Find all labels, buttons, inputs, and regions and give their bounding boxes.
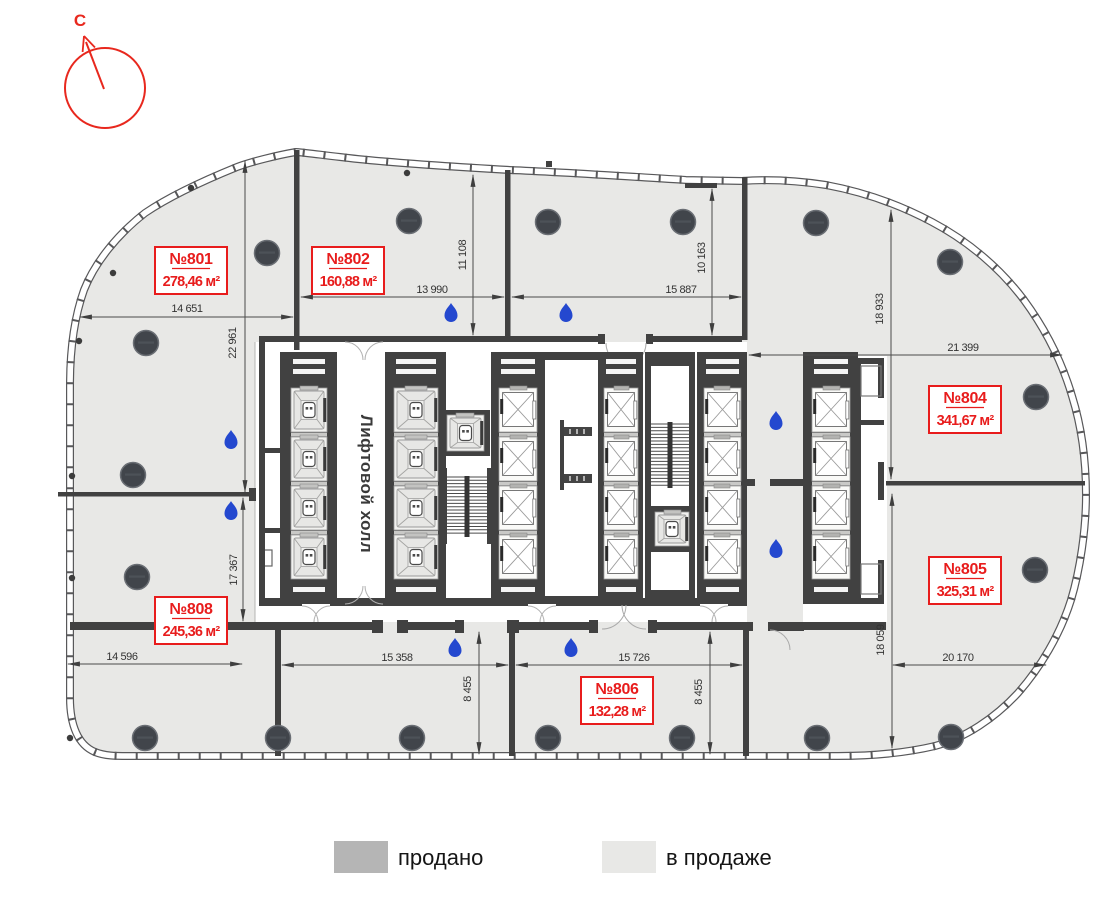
svg-text:21 399: 21 399 bbox=[947, 342, 979, 354]
svg-text:245,36 м²: 245,36 м² bbox=[163, 624, 221, 640]
svg-text:№802: №802 bbox=[326, 251, 370, 268]
svg-text:11 108: 11 108 bbox=[457, 240, 469, 271]
svg-text:341,67 м²: 341,67 м² bbox=[937, 413, 995, 429]
svg-text:Лифтовой холл: Лифтовой холл bbox=[357, 415, 376, 553]
svg-text:№808: №808 bbox=[169, 601, 213, 618]
svg-text:8 455: 8 455 bbox=[462, 676, 474, 702]
svg-text:№805: №805 bbox=[943, 561, 987, 578]
svg-text:№801: №801 bbox=[169, 251, 213, 268]
svg-text:132,28 м²: 132,28 м² bbox=[589, 704, 647, 720]
svg-text:№804: №804 bbox=[943, 390, 987, 407]
svg-text:15 726: 15 726 bbox=[618, 652, 650, 664]
svg-text:С: С bbox=[74, 11, 86, 30]
svg-text:22 961: 22 961 bbox=[227, 327, 239, 359]
svg-text:15 358: 15 358 bbox=[381, 652, 413, 664]
svg-text:325,31 м²: 325,31 м² bbox=[937, 584, 995, 600]
svg-text:20 170: 20 170 bbox=[942, 652, 974, 664]
svg-text:14 596: 14 596 bbox=[106, 651, 138, 663]
svg-text:18 933: 18 933 bbox=[874, 293, 886, 325]
svg-text:17 367: 17 367 bbox=[228, 554, 240, 586]
svg-text:продано: продано bbox=[398, 845, 483, 870]
svg-text:18 059: 18 059 bbox=[875, 624, 887, 656]
svg-text:14 651: 14 651 bbox=[171, 303, 203, 315]
svg-text:8 455: 8 455 bbox=[693, 679, 705, 705]
svg-text:160,88 м²: 160,88 м² bbox=[320, 274, 378, 290]
svg-text:13 990: 13 990 bbox=[416, 284, 448, 296]
svg-text:№806: №806 bbox=[595, 681, 639, 698]
svg-text:10 163: 10 163 bbox=[696, 242, 708, 274]
svg-text:в продаже: в продаже bbox=[666, 845, 772, 870]
svg-text:278,46 м²: 278,46 м² bbox=[163, 274, 221, 290]
svg-text:15 887: 15 887 bbox=[665, 284, 697, 296]
